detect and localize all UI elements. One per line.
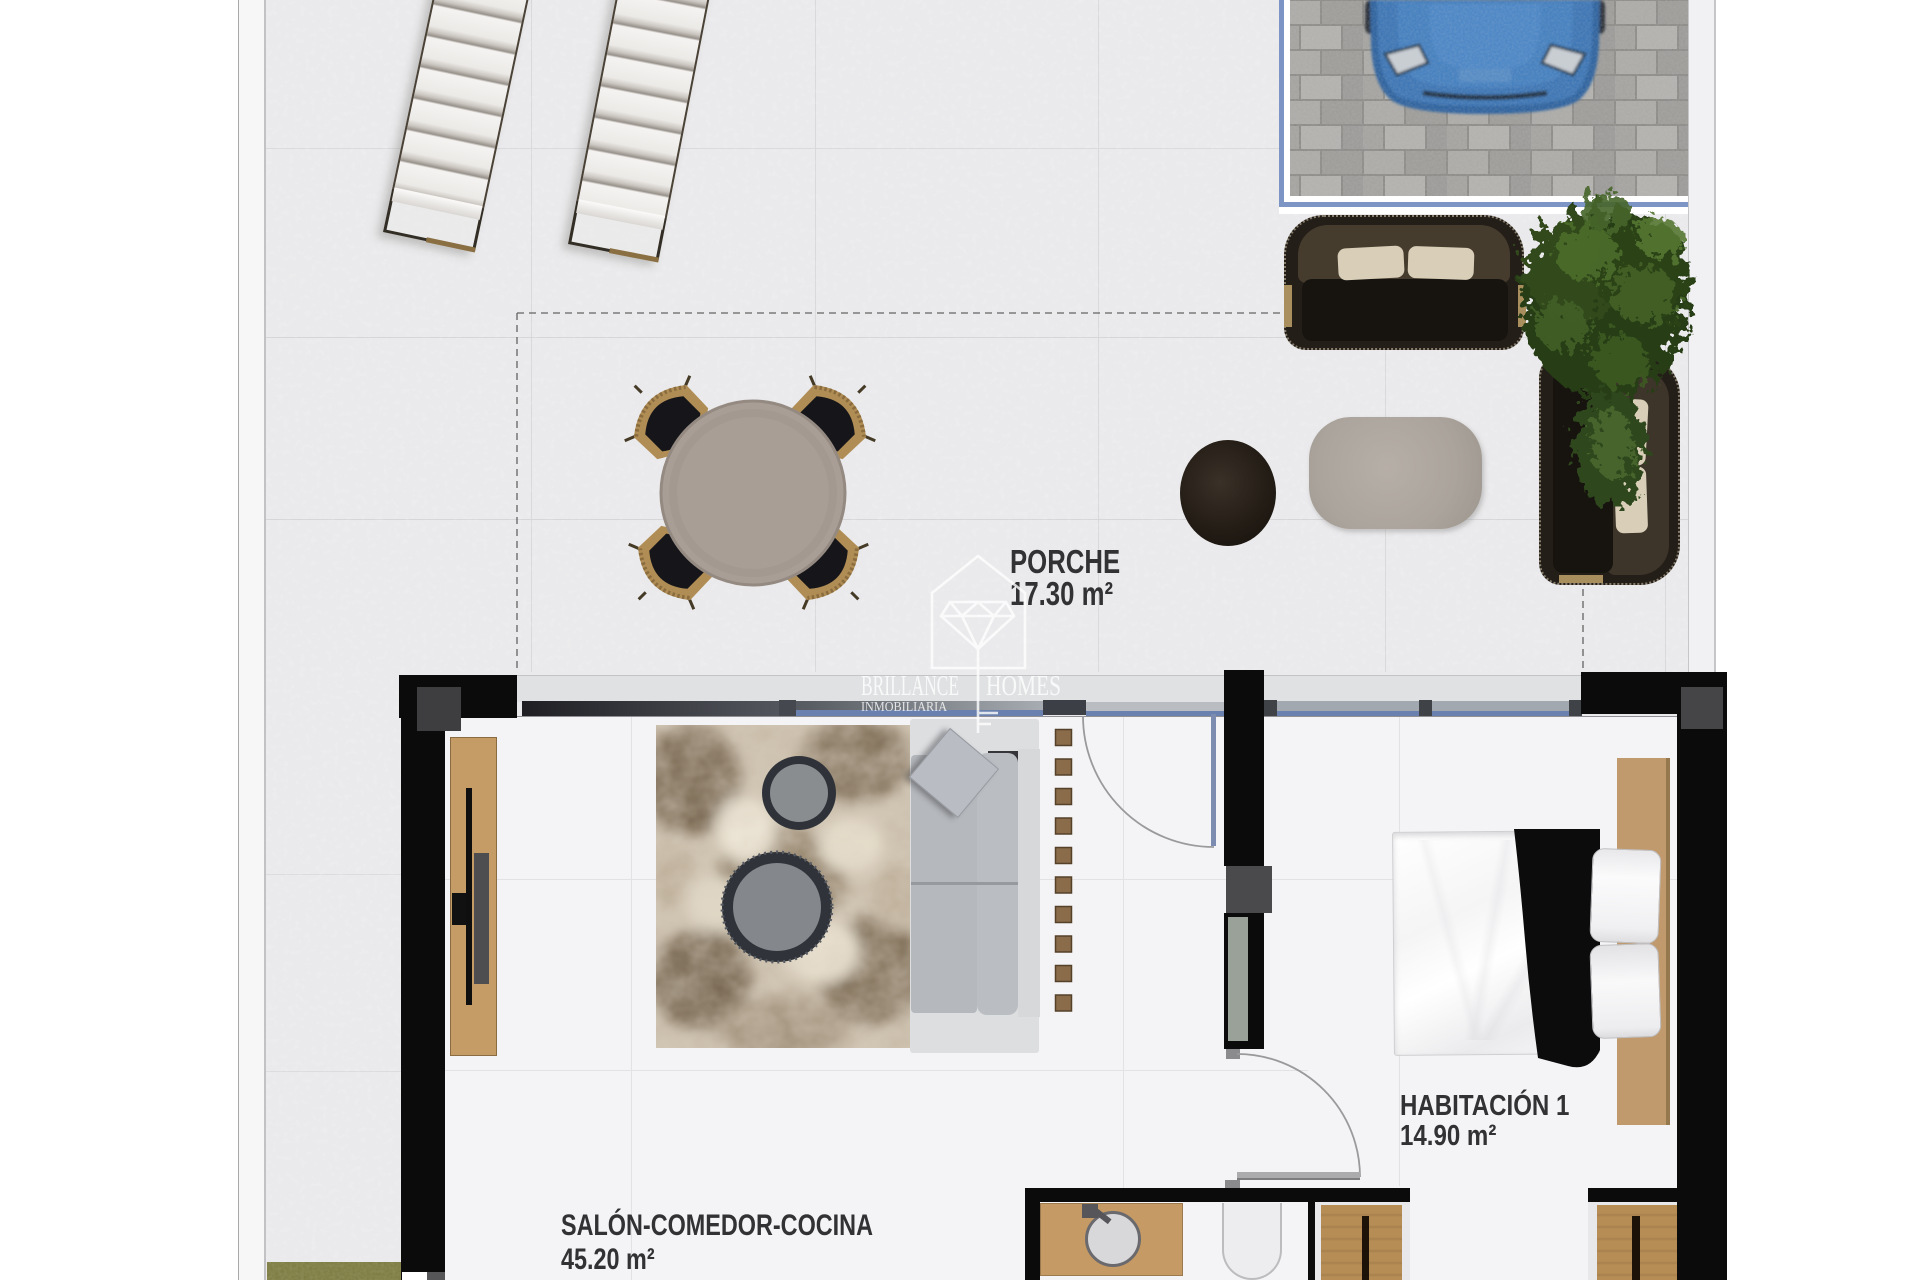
svg-text:BRILLANCE: BRILLANCE bbox=[861, 671, 959, 702]
svg-text:HOMES: HOMES bbox=[986, 671, 1061, 702]
svg-text:INMOBILIARIA: INMOBILIARIA bbox=[861, 700, 948, 715]
